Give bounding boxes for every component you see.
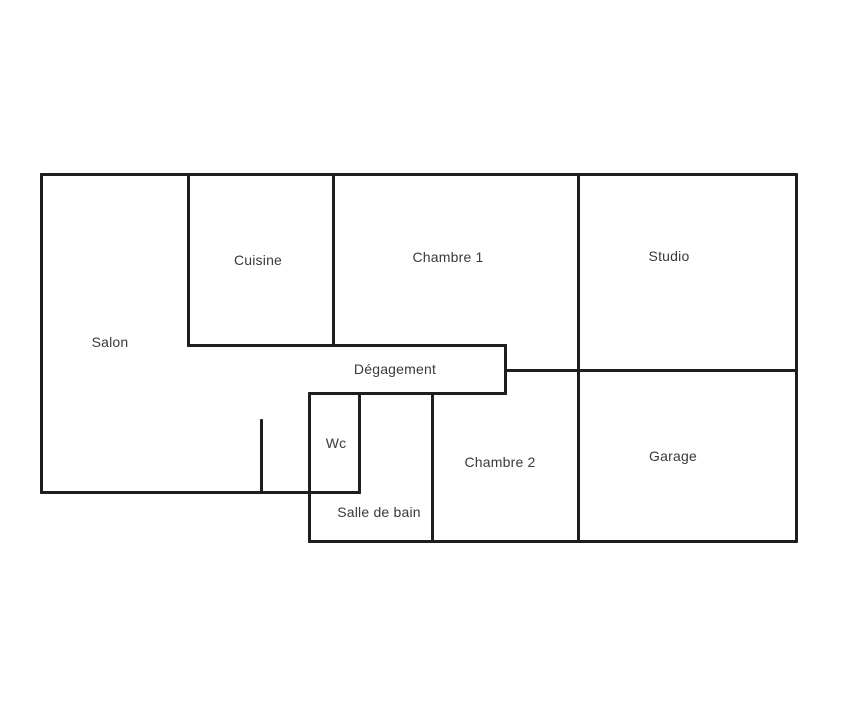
wall-cuisine-bottom-degagement-top [187,344,507,347]
room-label-salle-de-bain: Salle de bain [337,504,421,520]
room-label-garage: Garage [649,448,697,464]
wall-salon-bottom-wc-bottom [40,491,361,494]
wall-cuisine-chambre1-divider [332,173,335,347]
wall-salon-door-stub [260,419,263,494]
wall-outer-right [795,173,798,543]
wall-outer-top [40,173,798,176]
room-label-studio: Studio [649,248,690,264]
room-label-cuisine: Cuisine [234,252,282,268]
wall-salledebain-chambre2-divider [431,392,434,543]
wall-chambre1-studio-divider [577,173,580,543]
floorplan: SalonCuisineChambre 1StudioDégagementWcC… [0,0,846,720]
wall-outer-bottom [308,540,798,543]
wall-wc-right [358,392,361,494]
wall-degagement-right [504,344,507,395]
wall-degagement-bottom [308,392,507,395]
wall-studio-garage-divider [504,369,798,372]
room-label-chambre-1: Chambre 1 [412,249,483,265]
room-label-chambre-2: Chambre 2 [464,454,535,470]
wall-outer-left [40,173,43,494]
room-label-wc: Wc [326,435,347,451]
wall-wc-salle-de-bain-left [308,392,311,543]
room-label-salon: Salon [92,334,129,350]
room-label-degagement: Dégagement [354,361,436,377]
wall-salon-cuisine-divider [187,173,190,347]
